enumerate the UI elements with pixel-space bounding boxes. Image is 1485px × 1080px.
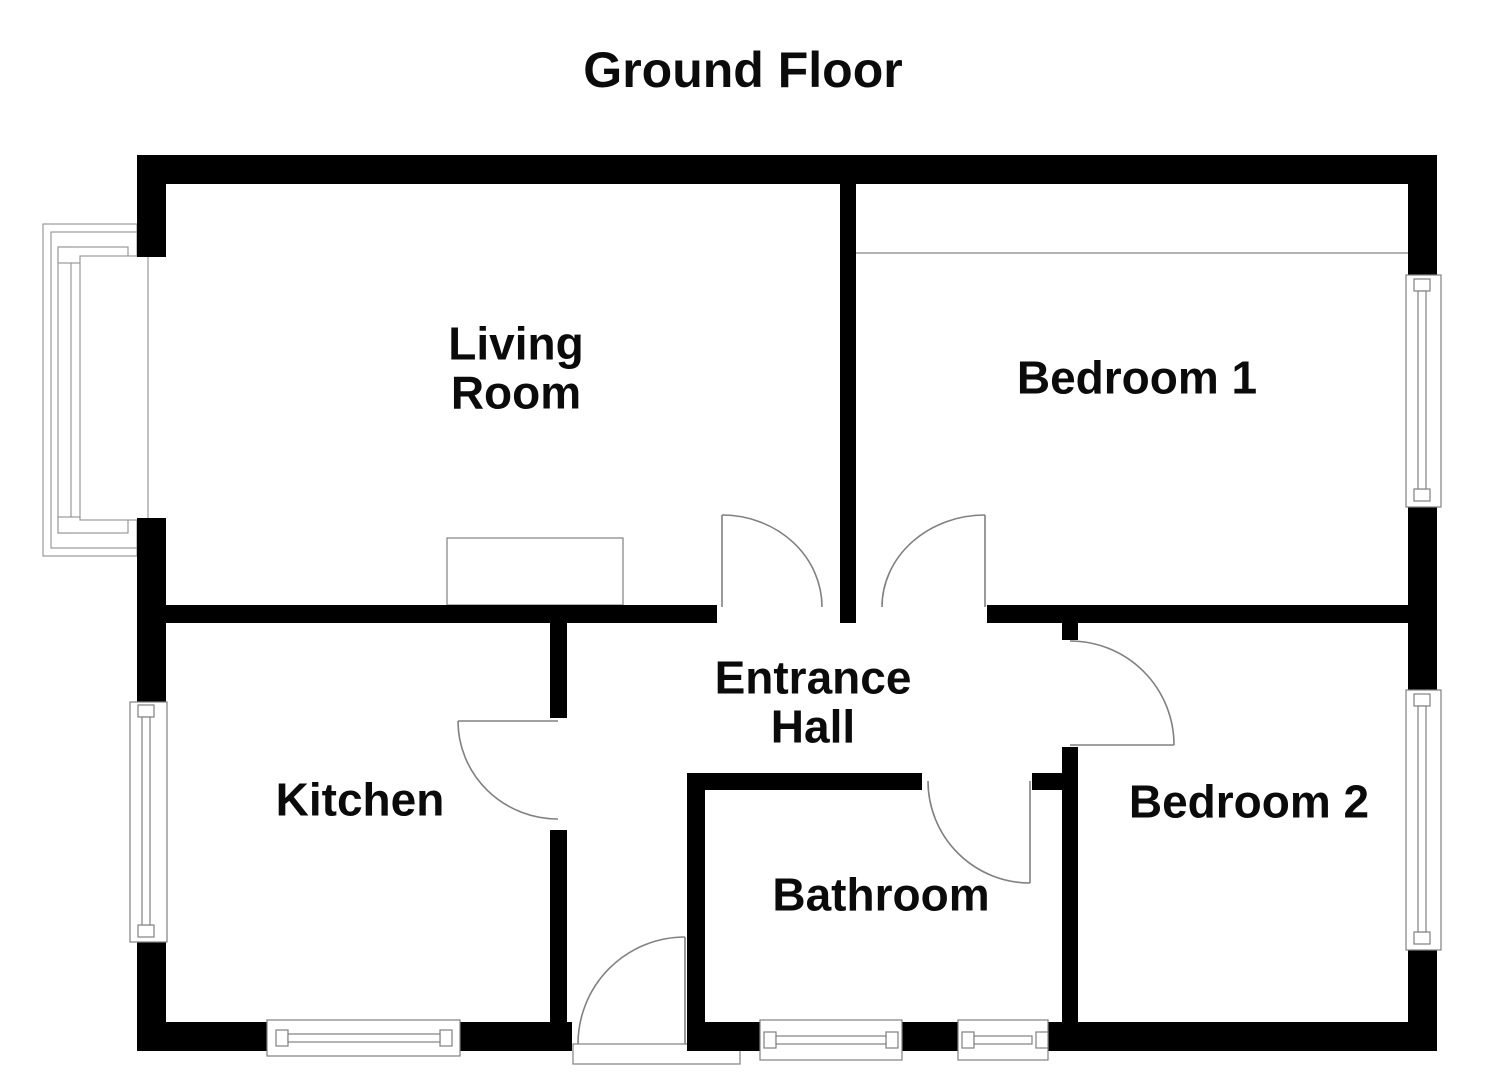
window-glazing [1418,706,1426,932]
room-label-entrance-hall: Entrance Hall [715,653,912,751]
kitchen-side-window [130,702,167,942]
wall-exterior-top [137,155,1437,184]
floor-plan: Ground Floor Living Room Bedroom 1 Entra… [0,0,1485,1080]
window-cap [1414,932,1430,944]
wall-exterior-bottom-1 [137,1022,267,1051]
room-label-bedroom-1: Bedroom 1 [1017,354,1257,403]
wall-bedroom1-bedroom2-divider [987,605,1437,623]
bathroom-window-left [760,1020,902,1060]
door-swing-arc [578,937,685,1044]
wall-exterior-right-mid [1408,507,1437,690]
window-cap [440,1030,452,1046]
bedroom-1-window [1406,275,1441,507]
room-label-bedroom-2: Bedroom 2 [1129,778,1369,827]
wall-hall-bedroom2-lower [1062,747,1078,1022]
door-swing-arc [722,515,822,607]
bay-glazing-left [58,247,71,533]
door-swing-arc [1070,641,1174,745]
wall-exterior-right-upper [1408,184,1437,275]
living-room-door [722,515,822,607]
wall-hall-bedroom2-stub [1062,623,1078,640]
room-label-bathroom: Bathroom [772,871,989,920]
room-label-line: Bedroom 1 [1017,354,1257,403]
room-label-living-room: Living Room [448,319,583,417]
room-label-kitchen: Kitchen [276,776,445,825]
living-room-bay-window [43,224,148,556]
wall-livingroom-bedroom1-divider [840,184,856,623]
wall-exterior-bottom-2 [460,1022,572,1051]
door-swing-arc [882,515,985,607]
window-glazing [776,1036,886,1044]
door-swing-arc [458,721,558,819]
window-glazing [974,1036,1032,1044]
wall-bathroom-left [687,773,705,1022]
room-label-line: Hall [715,702,912,751]
room-label-line: Room [448,368,583,417]
bedroom-1-door [882,515,985,607]
wall-kitchen-hall-lower [550,830,567,1022]
window-glazing [288,1034,440,1042]
window-cap [276,1030,288,1046]
window-cap [1414,694,1430,706]
wall-exterior-left-upper [137,184,166,257]
window-glazing [1418,291,1426,489]
wall-exterior-bottom-5 [1048,1022,1437,1051]
window-cap [764,1032,776,1048]
window-cap [138,705,154,717]
window-cap [962,1032,974,1048]
bedroom-2-door [1070,641,1174,745]
bay-inner-sill [80,256,148,520]
wall-hall-top-left [166,605,717,623]
wall-exterior-left-mid [137,518,166,702]
window-cap [1414,279,1430,291]
bedroom-2-window [1406,690,1441,950]
wall-bathroom-top-left [705,773,922,790]
wall-exterior-bottom-4 [902,1022,958,1051]
wall-bathroom-top-right [1032,773,1062,790]
window-cap [138,925,154,937]
room-label-line: Bathroom [772,871,989,920]
floor-plan-drawing [0,0,1485,1080]
room-label-line: Entrance [715,653,912,702]
kitchen-rear-window [267,1020,460,1056]
fireplace-outline [447,538,623,605]
wall-kitchen-hall-upper [550,623,567,718]
room-label-line: Bedroom 2 [1129,778,1369,827]
wall-exterior-right-lower [1408,950,1437,1051]
window-glazing [142,717,150,925]
front-door [578,937,685,1044]
window-cap [886,1032,898,1048]
room-label-line: Kitchen [276,776,445,825]
window-cap [1036,1032,1048,1048]
kitchen-door [458,721,558,819]
bathroom-window-right [958,1020,1048,1060]
living-room-fireplace [447,538,623,605]
room-label-line: Living [448,319,583,368]
page-title: Ground Floor [583,41,902,99]
wall-exterior-bottom-3 [687,1022,760,1051]
window-cap [1414,489,1430,501]
